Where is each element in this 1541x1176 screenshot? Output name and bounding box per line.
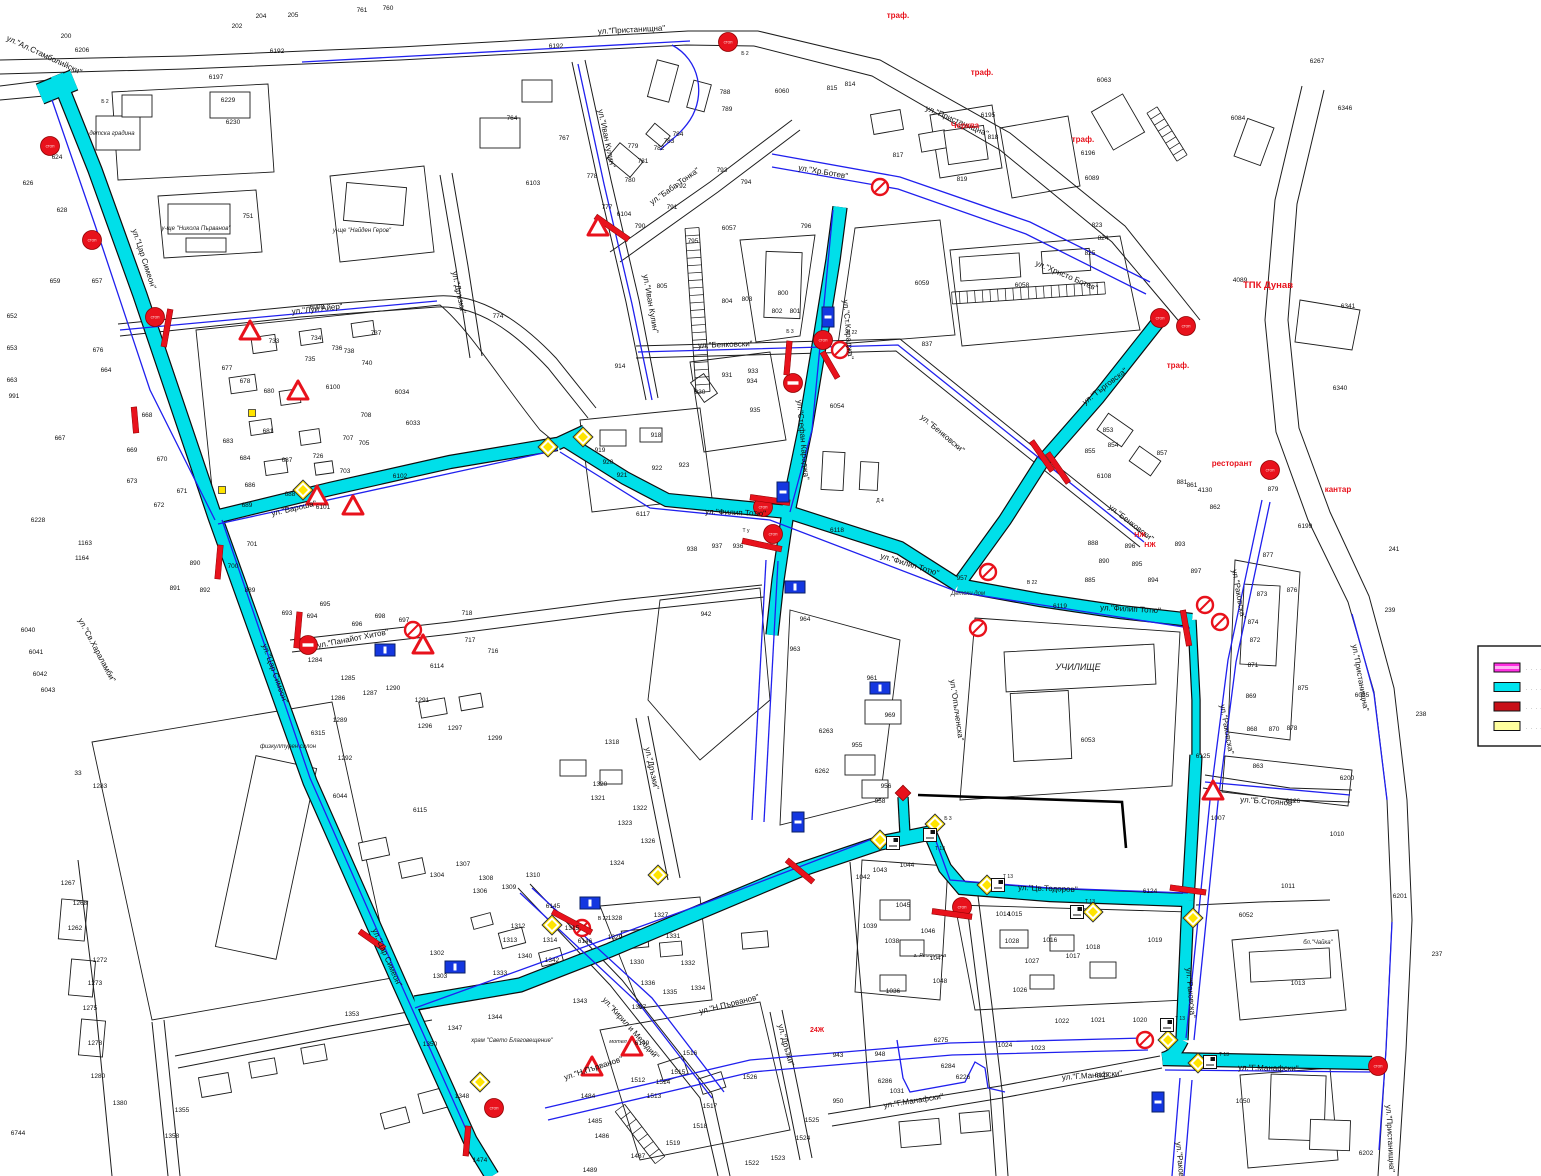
street-label: ул."Г.Манафски" <box>1238 1063 1299 1073</box>
parcel-number: 663 <box>7 377 18 384</box>
parcel-number: 6108 <box>1097 473 1112 480</box>
parcel-number: 1019 <box>1148 937 1163 944</box>
info-sign-glyph <box>384 647 387 654</box>
parcel-number: 936 <box>733 543 744 550</box>
parcel-number: 6192 <box>549 43 564 50</box>
map-symbol-no-entry <box>784 374 803 393</box>
map-symbol-red-circle: СТОП <box>1177 317 1196 336</box>
blue-rect-icon <box>785 581 805 593</box>
info-sign-glyph <box>825 316 832 319</box>
parcel-number: 668 <box>142 412 153 419</box>
red-circle-icon: СТОП <box>1182 325 1191 329</box>
parcel-number: 1314 <box>543 937 558 944</box>
building <box>1309 1119 1350 1150</box>
parcel-number: 780 <box>625 177 636 184</box>
parcel-number: 1017 <box>1066 953 1081 960</box>
parcel-number: 1272 <box>93 957 108 964</box>
red-circle-icon: СТОП <box>769 533 778 537</box>
map-symbol-ring <box>970 620 986 636</box>
parcel-number: 1313 <box>503 937 518 944</box>
parcel-number: 6044 <box>333 793 348 800</box>
parcel-number: 1380 <box>113 1100 128 1107</box>
parcel-number: 767 <box>559 135 570 142</box>
map-viewport[interactable]: СТОПСТОПСТОПСТОПСТОПСТОПСТОПСТОПСТОПСТОП… <box>0 0 1541 1176</box>
parcel-number: 805 <box>657 283 668 290</box>
map-symbol-yellow-sq <box>249 410 256 417</box>
parcel-number: 694 <box>307 613 318 620</box>
poi-label: физкултурен салон <box>260 744 317 750</box>
poi-label-red: траф. <box>887 11 909 20</box>
parcel-number: 708 <box>361 412 372 419</box>
parcel-number: 6286 <box>878 1078 893 1085</box>
parcel-number: 624 <box>52 154 63 161</box>
parcel-number: 239 <box>1385 607 1396 614</box>
parcel-number: 819 <box>957 176 968 183</box>
map-symbol-red-circle: СТОП <box>83 231 102 250</box>
parcel-number: 764 <box>507 115 518 122</box>
red-circle-icon: СТОП <box>724 41 733 45</box>
poi-label: храм "Свето Благовещение" <box>470 1038 554 1044</box>
parcel-number: 1285 <box>341 675 356 682</box>
legend-swatch <box>1494 683 1520 692</box>
parcel-number: 628 <box>57 207 68 214</box>
parcel-number: 935 <box>750 407 761 414</box>
white-sq-icon <box>894 838 899 842</box>
parcel-number: 6103 <box>526 180 541 187</box>
parcel-number: 205 <box>288 12 299 19</box>
legend-label: · · · · · <box>1526 726 1541 731</box>
poi-label-red: кантар <box>1325 485 1352 494</box>
parcel-number: 6199 <box>1298 523 1313 530</box>
parcel-number: 1524 <box>796 1135 811 1142</box>
parcel-number: 6118 <box>830 527 844 534</box>
no-entry-icon <box>303 643 314 646</box>
parcel-number: 717 <box>465 637 476 644</box>
parcel-number: 6341 <box>1341 303 1356 310</box>
sign-code-label: Т у <box>743 528 750 534</box>
parcel-number: 825 <box>1085 250 1096 257</box>
parcel-number: 800 <box>778 290 789 297</box>
parcel-number: 1304 <box>430 872 445 879</box>
parcel-number: 701 <box>247 541 258 548</box>
parcel-number: 6033 <box>406 420 421 427</box>
red-circle-icon: СТОП <box>819 339 828 343</box>
parcel-number: 6115 <box>413 807 427 814</box>
parcel-number: 6084 <box>1231 115 1246 122</box>
parcel-number: 1309 <box>502 884 517 891</box>
parcel-number: 890 <box>1099 558 1110 565</box>
poi-label: бл."Чайка" <box>1303 939 1333 946</box>
map-symbol-white-sq <box>1071 906 1084 919</box>
map-symbol-red-circle: СТОП <box>1369 1057 1388 1076</box>
parcel-number: 6104 <box>617 211 632 218</box>
sign-code-label: Т 13 <box>1219 1052 1229 1058</box>
map-symbol-blue-rect <box>375 644 395 656</box>
parcel-number: 969 <box>885 712 896 719</box>
parcel-number: 4130 <box>1198 487 1213 494</box>
parcel-number: 1036 <box>886 988 901 995</box>
parcel-number: 698 <box>375 613 386 620</box>
parcel-number: 1292 <box>338 755 353 762</box>
parcel-number: 707 <box>343 435 354 442</box>
parcel-number: 931 <box>722 372 733 379</box>
parcel-number: 681 <box>263 428 274 435</box>
parcel-number: 1280 <box>91 1073 106 1080</box>
parcel-number: 1306 <box>473 888 488 895</box>
parcel-number: 1331 <box>666 933 681 940</box>
parcel-number: 667 <box>55 435 66 442</box>
parcel-number: 677 <box>222 365 233 372</box>
parcel-number: 855 <box>1085 448 1096 455</box>
parcel-number: 1010 <box>1330 831 1345 838</box>
parcel-number: 6060 <box>775 88 790 95</box>
map-symbol-red-circle: СТОП <box>814 331 833 350</box>
parcel-number: 6149 <box>635 1040 650 1047</box>
building <box>68 959 95 997</box>
parcel-number: 1512 <box>631 1077 646 1084</box>
parcel-number: 716 <box>488 648 499 655</box>
poi-label: у-ще "Найден Геров" <box>332 227 392 234</box>
sign-code-label: Б 3 <box>944 816 952 822</box>
parcel-number: 895 <box>1132 561 1143 568</box>
parcel-number: 779 <box>628 143 639 150</box>
parcel-number: 1518 <box>693 1123 708 1130</box>
parcel-number: 1328 <box>608 915 623 922</box>
parcel-number: 6052 <box>1239 912 1254 919</box>
parcel-number: 783 <box>664 138 675 145</box>
building <box>821 451 845 490</box>
parcel-number: 1039 <box>863 923 878 930</box>
map-symbol-red-circle: СТОП <box>41 137 60 156</box>
sign-code-label: Т 13 <box>1175 1016 1185 1022</box>
parcel-number: 1336 <box>641 980 656 987</box>
parcel-number: 794 <box>741 179 752 186</box>
info-sign-glyph <box>795 821 802 824</box>
parcel-number: 1484 <box>581 1093 596 1100</box>
map-symbol-no-entry <box>299 636 318 655</box>
parcel-number: 6200 <box>1340 775 1355 782</box>
parcel-number: 1513 <box>647 1093 662 1100</box>
parcel-number: 818 <box>988 134 999 141</box>
yellow-sq-icon <box>249 410 256 417</box>
parcel-number: 6114 <box>430 663 444 670</box>
sign-code-label: Б 2 <box>101 99 109 105</box>
parcel-number: 878 <box>1287 725 1298 732</box>
sign-code-label: Т 13 <box>935 846 945 852</box>
poi-label-red: траф. <box>1072 135 1094 144</box>
info-sign-glyph <box>794 584 797 591</box>
route-street <box>40 80 74 94</box>
parcel-number: 1016 <box>1043 937 1058 944</box>
parcel-number: 670 <box>157 456 168 463</box>
parcel-number: 1307 <box>456 861 471 868</box>
parcel-number: 814 <box>845 81 856 88</box>
parcel-number: 6057 <box>722 225 737 232</box>
parcel-number: 688 <box>285 491 296 498</box>
parcel-number: 788 <box>720 89 731 96</box>
poi-label: Детски дом <box>950 591 985 597</box>
red-circle-icon: СТОП <box>88 239 97 243</box>
parcel-number: 888 <box>1088 540 1099 547</box>
poi-label: УЧИЛИЩЕ <box>1054 662 1101 672</box>
parcel-number: 734 <box>311 335 322 342</box>
parcel-number: 948 <box>875 1051 886 1058</box>
parcel-number: 683 <box>223 438 234 445</box>
parcel-number: 1519 <box>666 1140 681 1147</box>
parcel-number: 202 <box>232 23 243 30</box>
poi-label: детска градина <box>89 131 135 137</box>
poi-label-red: НЖ <box>1144 542 1156 549</box>
parcel-number: 6127 <box>1095 1072 1110 1079</box>
parcel-number: 824 <box>1098 235 1109 242</box>
parcel-number: 1489 <box>583 1167 598 1174</box>
parcel-number: 6197 <box>209 74 224 81</box>
parcel-number: 671 <box>177 488 188 495</box>
map-symbol-blue-rect <box>580 897 600 909</box>
blue-rect-icon <box>792 812 804 832</box>
red-circle-icon: СТОП <box>151 316 160 320</box>
parcel-number: 6054 <box>830 403 845 410</box>
parcel-number: 885 <box>1085 577 1096 584</box>
parcel-number: 733 <box>269 338 280 345</box>
parcel-number: 1020 <box>1133 1017 1148 1024</box>
parcel-number: 876 <box>1287 587 1298 594</box>
parcel-number: 751 <box>243 213 254 220</box>
building <box>480 118 520 148</box>
parcel-number: 1290 <box>386 685 401 692</box>
sign-code-label: Т 13 <box>1085 899 1095 905</box>
parcel-number: 1322 <box>633 805 648 812</box>
parcel-number: 1044 <box>900 862 915 869</box>
parcel-number: 700 <box>228 563 239 570</box>
parcel-number: 957 <box>957 575 968 582</box>
parcel-number: 1343 <box>573 998 588 1005</box>
parcel-number: 795 <box>688 238 699 245</box>
parcel-number: 796 <box>801 223 812 230</box>
parcel-number: 680 <box>264 388 275 395</box>
map-symbol-ring <box>980 564 996 580</box>
parcel-number: 1299 <box>488 735 503 742</box>
parcel-number: 237 <box>1432 951 1443 958</box>
parcel-number: 626 <box>23 180 34 187</box>
sign-code-label: В 22 <box>1027 580 1038 586</box>
parcel-number: 1355 <box>175 1107 190 1114</box>
parcel-number: 6119 <box>1053 603 1067 610</box>
parcel-number: 1344 <box>488 1014 503 1021</box>
building <box>959 1111 991 1134</box>
parcel-number: 6346 <box>1338 105 1353 112</box>
parcel-number: 991 <box>9 393 20 400</box>
parcel-number: 937 <box>712 543 723 550</box>
parcel-number: 6101 <box>316 504 331 511</box>
building <box>919 130 948 152</box>
parcel-number: 963 <box>790 646 801 653</box>
parcel-number: 1024 <box>998 1042 1013 1049</box>
parcel-number: 6117 <box>636 511 650 518</box>
parcel-number: 777 <box>602 204 613 211</box>
parcel-number: 676 <box>93 347 104 354</box>
map-symbol-ring <box>872 179 888 195</box>
map-symbol-yellow-sq <box>219 487 226 494</box>
parcel-number: 6043 <box>41 687 56 694</box>
parcel-number: 1487 <box>631 1153 646 1160</box>
building <box>859 462 878 491</box>
sign-code-label: В 22 <box>847 330 858 336</box>
parcel-number: 1333 <box>493 970 508 977</box>
parcel-number: 736 <box>332 345 343 352</box>
parcel-number: 879 <box>1268 486 1279 493</box>
parcel-number: 653 <box>7 345 18 352</box>
parcel-number: 1038 <box>885 938 900 945</box>
parcel-number: 815 <box>827 85 838 92</box>
map-symbol-ring <box>1137 1032 1153 1048</box>
parcel-number: 862 <box>1210 504 1221 511</box>
red-circle-icon: СТОП <box>1156 317 1165 321</box>
map-canvas: СТОПСТОПСТОПСТОПСТОПСТОПСТОПСТОПСТОПСТОП… <box>0 0 1541 1176</box>
parcel-number: 6315 <box>311 730 326 737</box>
parcel-number: 875 <box>1298 685 1309 692</box>
parcel-number: 933 <box>748 368 759 375</box>
parcel-number: 6340 <box>1333 385 1348 392</box>
parcel-number: 1348 <box>455 1093 470 1100</box>
parcel-number: 1028 <box>1005 938 1020 945</box>
parcel-number: 803 <box>742 296 753 303</box>
parcel-number: 6040 <box>21 627 36 634</box>
parcel-number: 1321 <box>591 795 606 802</box>
parcel-number: 6042 <box>33 671 48 678</box>
map-symbol-blue-rect <box>777 482 789 502</box>
parcel-number: 1286 <box>331 695 346 702</box>
parcel-number: 1287 <box>363 690 378 697</box>
parcel-number: 1347 <box>448 1025 463 1032</box>
parcel-number: 652 <box>7 313 18 320</box>
parcel-number: 686 <box>245 482 256 489</box>
parcel-number: 657 <box>92 278 103 285</box>
building <box>1030 975 1054 989</box>
parcel-number: 892 <box>200 587 211 594</box>
parcel-number: 793 <box>717 167 728 174</box>
parcel-number: 1048 <box>933 978 948 985</box>
blue-rect-icon <box>445 961 465 973</box>
parcel-number: 1515 <box>671 1069 686 1076</box>
poi-label-red: траф. <box>1167 361 1189 370</box>
parcel-number: 958 <box>875 798 886 805</box>
parcel-number: 781 <box>638 158 649 165</box>
building <box>560 760 586 776</box>
building <box>741 931 768 949</box>
white-sq-icon <box>1078 907 1083 911</box>
map-symbol-red-circle: СТОП <box>1151 309 1170 328</box>
map-symbol-blue-rect <box>445 961 465 973</box>
poi-label: у-ще "Никола Първанов" <box>161 226 232 232</box>
no-entry-icon <box>788 381 799 384</box>
parcel-number: 1315 <box>565 925 580 932</box>
parcel-number: 874 <box>1248 619 1259 626</box>
parcel-number: 1312 <box>511 923 526 930</box>
parcel-number: 950 <box>833 1098 844 1105</box>
building <box>899 1118 941 1147</box>
parcel-number: 1278 <box>88 1040 103 1047</box>
parcel-number: 778 <box>587 173 598 180</box>
parcel-number: 1026 <box>1013 987 1028 994</box>
parcel-number: 1323 <box>618 820 633 827</box>
parcel-number: 877 <box>1263 552 1274 559</box>
parcel-number: 1273 <box>88 980 103 987</box>
parcel-number: 703 <box>340 468 351 475</box>
poi-label-red: траф. <box>971 68 993 77</box>
parcel-number: 1018 <box>1086 944 1101 951</box>
parcel-number: 1284 <box>308 657 323 664</box>
parcel-number: 6125 <box>1196 753 1211 760</box>
parcel-number: 6202 <box>1359 1150 1374 1157</box>
parcel-number: 930 <box>695 389 706 396</box>
parcel-number: 891 <box>170 585 181 592</box>
parcel-number: 923 <box>679 462 690 469</box>
parcel-number: 1340 <box>518 953 533 960</box>
parcel-number: 791 <box>667 204 678 211</box>
parcel-number: 1514 <box>656 1079 671 1086</box>
poi-label-red: ресторант <box>1212 459 1253 468</box>
legend-swatch <box>1494 722 1520 731</box>
parcel-number: 664 <box>101 367 112 374</box>
parcel-number: 241 <box>1389 546 1400 553</box>
map-symbol-ring <box>1212 614 1228 630</box>
parcel-number: 863 <box>1253 763 1264 770</box>
parcel-number: 6034 <box>395 389 410 396</box>
parcel-number: 669 <box>127 447 138 454</box>
parcel-number: 914 <box>615 363 626 370</box>
map-symbol-red-circle: СТОП <box>485 1099 504 1118</box>
parcel-number: 1042 <box>856 874 871 881</box>
parcel-number: 6196 <box>1081 150 1096 157</box>
parcel-number: 918 <box>651 432 662 439</box>
white-sq-icon <box>999 880 1004 884</box>
parcel-number: 1021 <box>1091 1017 1106 1024</box>
parcel-number: 6192 <box>270 48 285 55</box>
map-symbol-white-sq <box>992 879 1005 892</box>
parcel-number: 735 <box>305 356 316 363</box>
parcel-number: 889 <box>245 587 256 594</box>
building <box>1010 691 1071 762</box>
building <box>210 92 250 118</box>
white-sq-icon <box>931 830 936 834</box>
parcel-number: 678 <box>240 378 251 385</box>
parcel-number: 1302 <box>430 950 445 957</box>
parcel-number: 801 <box>790 308 801 315</box>
parcel-number: 1013 <box>1291 980 1306 987</box>
parcel-number: 6195 <box>981 112 996 119</box>
parcel-number: 1326 <box>641 838 656 845</box>
parcel-number: 1517 <box>703 1103 718 1110</box>
parcel-number: 1329 <box>608 934 623 941</box>
parcel-number: 705 <box>359 440 370 447</box>
map-symbol-white-sq <box>1204 1056 1217 1069</box>
blue-rect-icon <box>870 682 890 694</box>
blue-rect-icon <box>822 307 834 327</box>
parcel-number: 896 <box>1125 543 1136 550</box>
parcel-number: 861 <box>1187 482 1198 489</box>
white-sq-icon <box>1168 1020 1173 1024</box>
red-circle-icon: СТОП <box>1374 1065 1383 1069</box>
info-sign-glyph <box>879 685 882 692</box>
parcel-number: 1163 <box>78 540 92 547</box>
building <box>314 461 333 475</box>
map-symbol-red-circle: СТОП <box>1261 461 1280 480</box>
parcel-number: 6263 <box>819 728 834 735</box>
parcel-number: 1334 <box>691 985 706 992</box>
parcel-number: 955 <box>852 742 863 749</box>
legend-label: · · · · · <box>1526 706 1541 711</box>
